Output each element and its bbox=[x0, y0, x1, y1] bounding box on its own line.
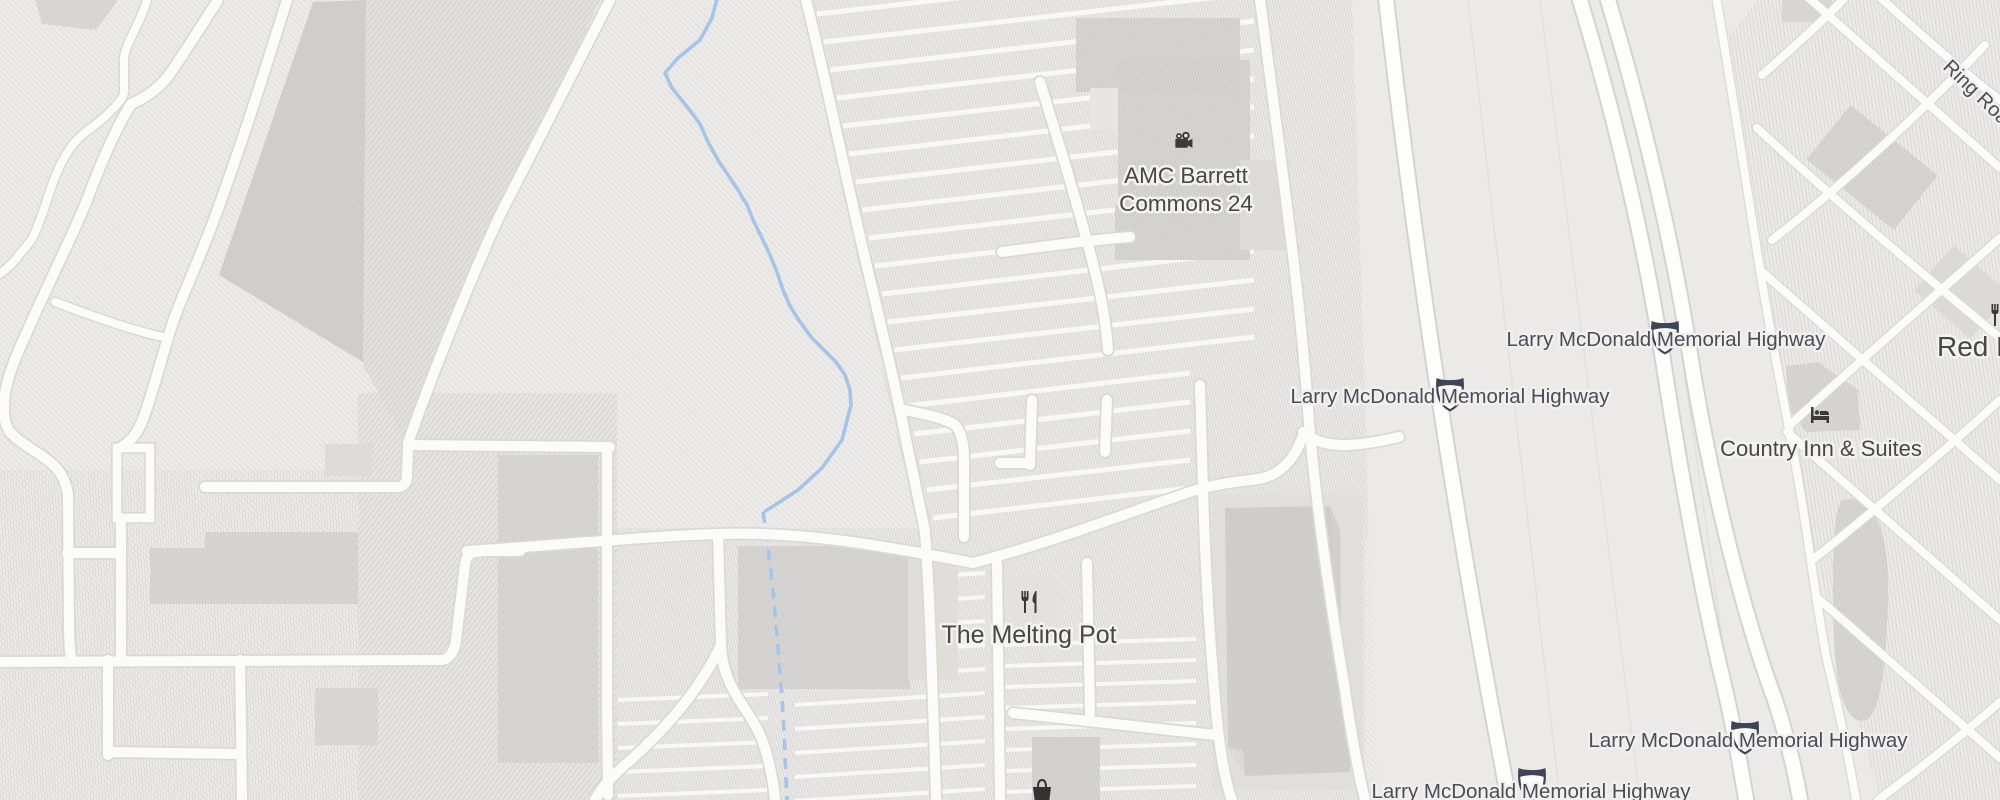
svg-text:Country Inn & Suites: Country Inn & Suites bbox=[1720, 436, 1922, 461]
svg-text:The Melting Pot: The Melting Pot bbox=[941, 621, 1116, 649]
svg-text:Larry McDonald Memorial Highwa: Larry McDonald Memorial Highway bbox=[1372, 780, 1692, 800]
svg-text:Larry McDonald Memorial Highwa: Larry McDonald Memorial Highway bbox=[1291, 385, 1611, 408]
svg-text:Larry McDonald Memorial Highwa: Larry McDonald Memorial Highway bbox=[1507, 328, 1827, 351]
svg-text:Larry McDonald Memorial Highwa: Larry McDonald Memorial Highway bbox=[1589, 729, 1909, 752]
svg-text:AMC Barrett: AMC Barrett bbox=[1124, 163, 1249, 188]
svg-text:Commons 24: Commons 24 bbox=[1119, 191, 1253, 216]
svg-text:Red Lo: Red Lo bbox=[1937, 331, 2000, 362]
